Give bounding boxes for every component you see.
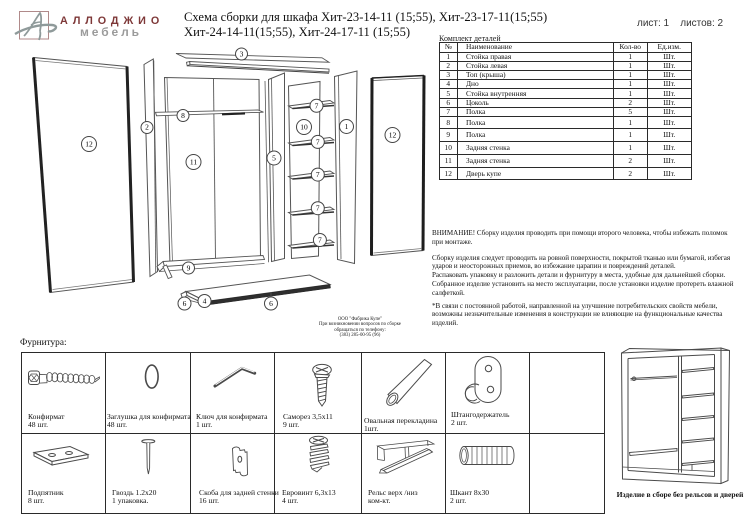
svg-text:9: 9 <box>187 264 191 273</box>
svg-text:6: 6 <box>269 299 273 308</box>
svg-text:4: 4 <box>203 297 207 306</box>
svg-text:11: 11 <box>190 158 197 167</box>
svg-text:3: 3 <box>240 50 244 59</box>
svg-text:2: 2 <box>145 123 149 132</box>
svg-text:10: 10 <box>300 123 308 132</box>
svg-text:7: 7 <box>316 204 320 213</box>
svg-text:1: 1 <box>345 122 349 131</box>
svg-text:7: 7 <box>316 137 320 146</box>
svg-text:5: 5 <box>272 154 276 163</box>
svg-text:7: 7 <box>318 236 322 245</box>
svg-text:12: 12 <box>389 131 397 140</box>
svg-text:7: 7 <box>316 170 320 179</box>
svg-text:12: 12 <box>85 140 93 149</box>
svg-text:8: 8 <box>181 111 185 120</box>
svg-text:6: 6 <box>183 299 187 308</box>
svg-text:7: 7 <box>315 101 319 110</box>
